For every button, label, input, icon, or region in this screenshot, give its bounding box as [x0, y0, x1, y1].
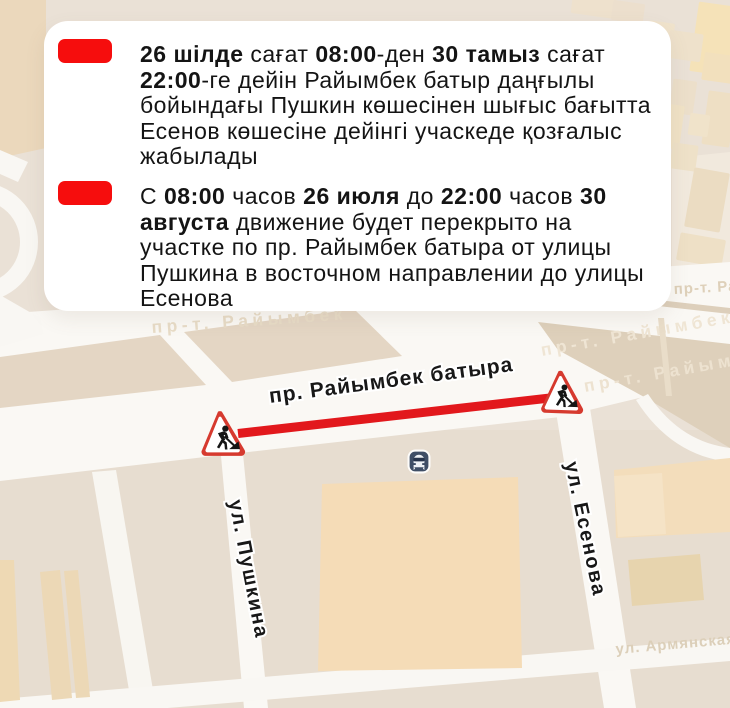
svg-text:пр-т. Ра: пр-т. Ра [673, 278, 730, 298]
